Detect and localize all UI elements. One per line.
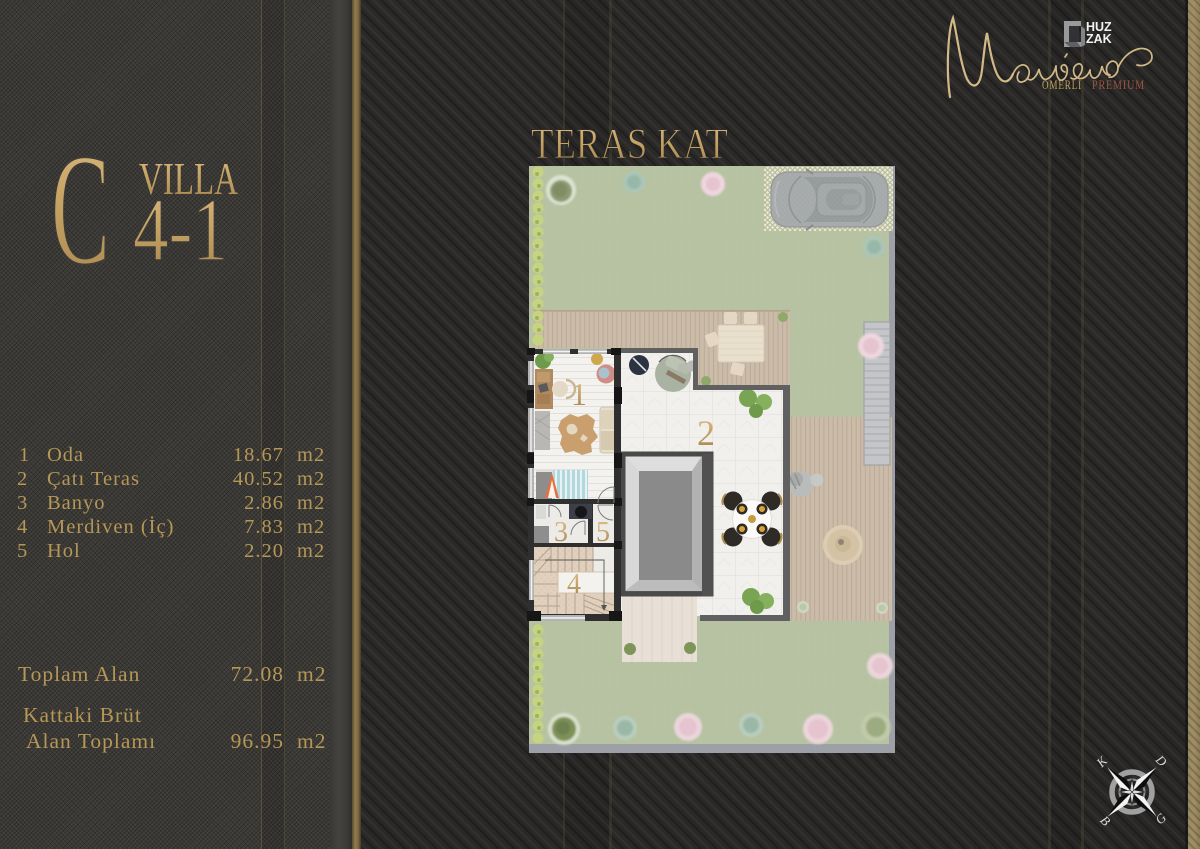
svg-text:m2: m2 bbox=[297, 492, 325, 514]
svg-text:4-1: 4-1 bbox=[133, 181, 228, 280]
svg-text:Hol: Hol bbox=[47, 540, 81, 562]
svg-text:G: G bbox=[1152, 810, 1170, 828]
svg-text:7.83: 7.83 bbox=[244, 516, 284, 538]
svg-text:Alan Toplamı: Alan Toplamı bbox=[26, 729, 156, 753]
svg-text:Banyo: Banyo bbox=[47, 492, 106, 514]
svg-text:C: C bbox=[51, 120, 110, 298]
svg-text:3: 3 bbox=[17, 492, 28, 514]
svg-text:4: 4 bbox=[567, 569, 581, 600]
svg-text:3: 3 bbox=[554, 517, 568, 548]
svg-text:1: 1 bbox=[571, 376, 587, 412]
svg-text:B: B bbox=[1097, 813, 1113, 829]
svg-text:Oda: Oda bbox=[47, 444, 84, 466]
svg-text:TERAS KAT: TERAS KAT bbox=[531, 121, 728, 168]
svg-text:1: 1 bbox=[19, 444, 30, 466]
svg-text:4: 4 bbox=[17, 516, 28, 538]
svg-text:18.67: 18.67 bbox=[233, 444, 284, 466]
svg-text:m2: m2 bbox=[297, 444, 325, 466]
svg-text:Merdiven (İç): Merdiven (İç) bbox=[47, 515, 174, 538]
svg-text:Kattaki Brüt: Kattaki Brüt bbox=[23, 703, 142, 727]
svg-text:m2: m2 bbox=[297, 729, 326, 753]
svg-text:40.52: 40.52 bbox=[233, 468, 284, 490]
svg-text:m2: m2 bbox=[297, 468, 325, 490]
svg-text:m2: m2 bbox=[297, 540, 325, 562]
svg-text:PREMIUM: PREMIUM bbox=[1092, 77, 1145, 92]
svg-text:Çatı Teras: Çatı Teras bbox=[47, 468, 140, 490]
svg-text:m2: m2 bbox=[297, 662, 326, 686]
svg-text:2.20: 2.20 bbox=[244, 540, 284, 562]
svg-text:Toplam Alan: Toplam Alan bbox=[18, 662, 140, 686]
svg-text:D: D bbox=[1152, 751, 1170, 769]
svg-text:2.86: 2.86 bbox=[244, 492, 284, 514]
svg-text:72.08: 72.08 bbox=[231, 662, 284, 686]
svg-text:2: 2 bbox=[697, 413, 715, 453]
svg-text:ÖMERLİ: ÖMERLİ bbox=[1042, 77, 1082, 92]
svg-text:ZAK: ZAK bbox=[1086, 32, 1112, 46]
svg-text:2: 2 bbox=[17, 468, 28, 490]
svg-text:96.95: 96.95 bbox=[231, 729, 284, 753]
svg-text:5: 5 bbox=[17, 540, 28, 562]
svg-text:m2: m2 bbox=[297, 516, 325, 538]
svg-text:5: 5 bbox=[596, 517, 610, 548]
